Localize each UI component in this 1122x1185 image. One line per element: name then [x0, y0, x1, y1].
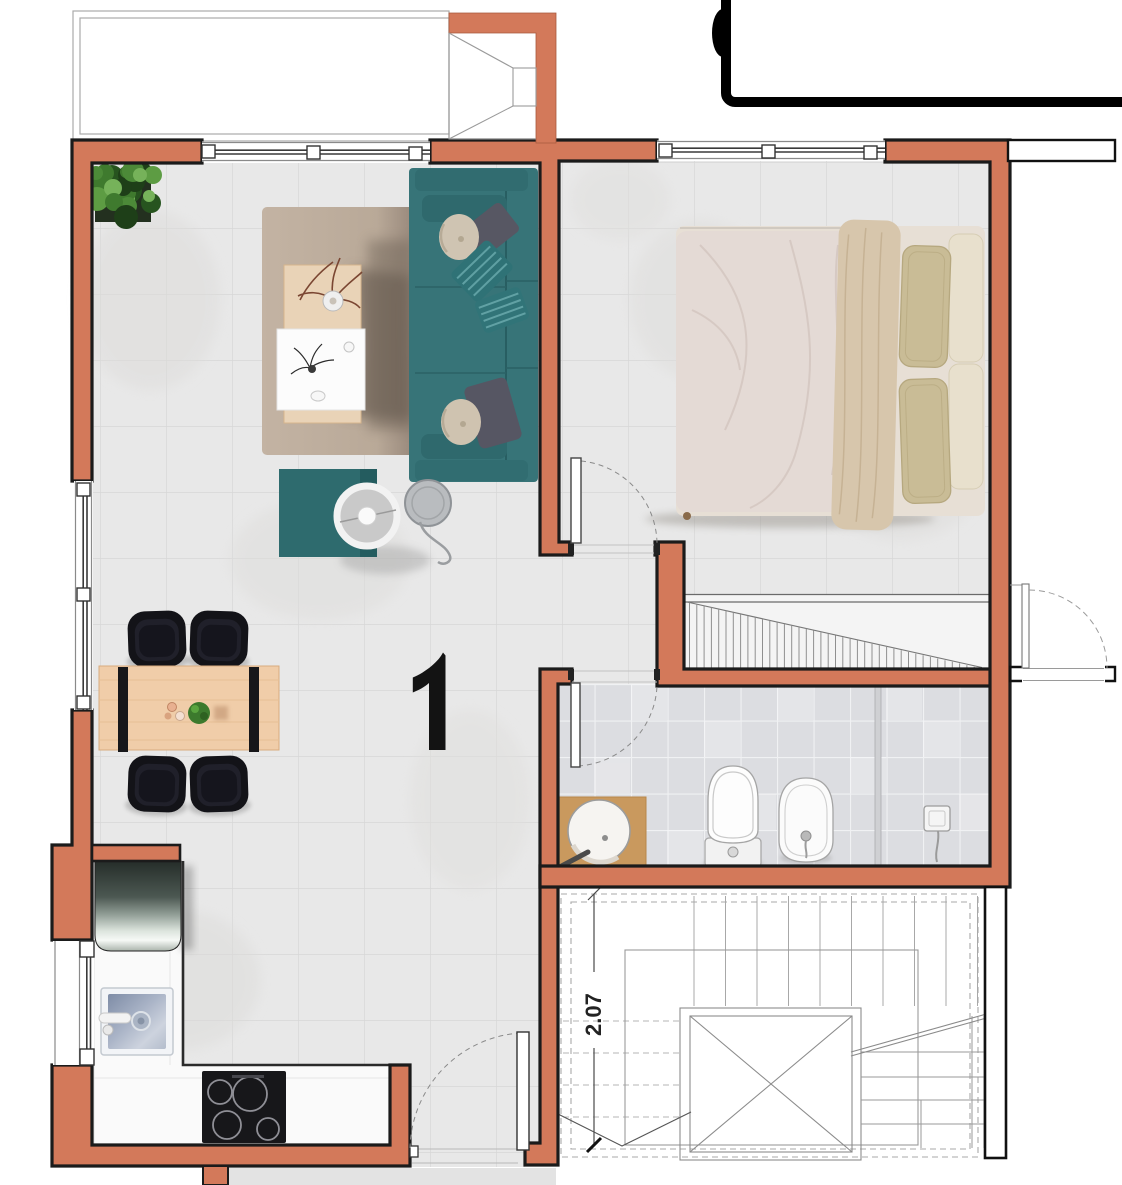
svg-text:2.07: 2.07 [581, 993, 606, 1036]
